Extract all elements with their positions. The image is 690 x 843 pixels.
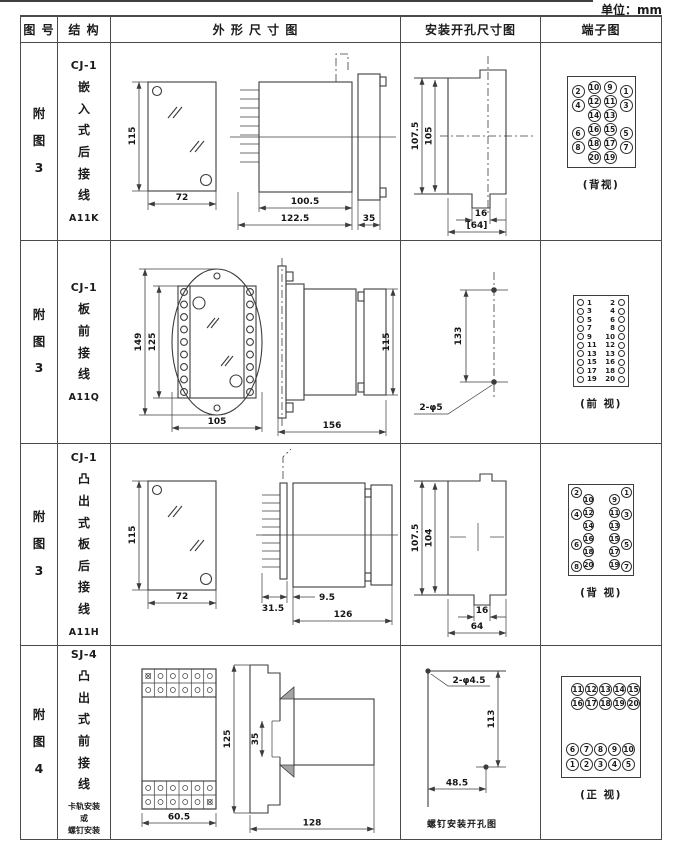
structure-desc: 板前接线: [77, 299, 92, 385]
model-label: CJ-1: [71, 59, 97, 72]
terminal-row: 78: [577, 324, 625, 332]
fig-number: 附图3: [32, 101, 47, 182]
dim-label: 100.5: [290, 197, 318, 207]
terminal-pin: 10: [622, 743, 635, 756]
mounting-cell-row4: 2-φ4.5 113 48.5 螺钉安装开孔图: [401, 646, 541, 839]
structure-cell-row2: CJ-1 板前接线 A11Q: [58, 241, 111, 444]
terminal-pin: 18: [583, 546, 594, 557]
model-code: A11K: [69, 213, 99, 224]
terminal-pin: 12: [585, 683, 598, 696]
model-label: CJ-1: [71, 451, 97, 464]
dim-label: [64]: [466, 221, 487, 231]
mounting-note: 卡轨安装 或 螺钉安装: [68, 801, 100, 837]
terminal-row: 12: [577, 299, 625, 307]
terminal-pin: 9: [609, 494, 620, 505]
terminal-pin: 6: [571, 539, 582, 550]
dim-label: 122.5: [280, 214, 308, 224]
fig-cell-row3: 附图3: [21, 444, 58, 646]
terminal-box: 12 34 56 78 910 1112 1313 1516 1718 1920: [573, 295, 629, 387]
dim-label: 48.5: [445, 778, 467, 788]
terminal-box: 11 12 13 14 15 16 17 18 19 20 6 7 8 9 10…: [561, 676, 641, 778]
terminal-caption: (背 视): [580, 585, 622, 600]
structure-cell-row3: CJ-1 凸出式板后接线 A11H: [58, 444, 111, 646]
dim-label: 115: [382, 333, 392, 352]
terminal-pin: 9: [604, 81, 617, 94]
terminal-pin: 3: [594, 758, 607, 771]
terminal-pin: 16: [583, 533, 594, 544]
terminal-pin: 20: [588, 151, 601, 164]
dim-label: 104: [424, 528, 434, 547]
terminal-pin: 17: [609, 546, 620, 557]
header-mounting: 安装开孔尺寸图: [401, 17, 541, 43]
mounting-hole-drawing-row3: 107.5 104 16 64: [402, 447, 540, 643]
fig-cell-row1: 附图3: [21, 43, 58, 241]
mounting-cell-row3: 107.5 104 16 64: [401, 444, 541, 646]
terminal-pin: 13: [609, 520, 620, 531]
dim-label: 113: [487, 709, 497, 728]
terminal-pin: 12: [588, 95, 601, 108]
terminal-row: 34: [577, 307, 625, 315]
dim-label: 115: [128, 126, 138, 145]
dim-label: 105: [207, 417, 226, 427]
model-label: SJ-4: [71, 648, 97, 661]
terminal-pin: 14: [613, 683, 626, 696]
terminal-pin: 8: [572, 141, 585, 154]
terminal-pin: 20: [583, 559, 594, 570]
dim-label: 107.5: [411, 121, 421, 149]
dim-label: 115: [128, 525, 138, 544]
terminal-cell-row3: 2 4 6 8 10 12 14 16 18 20 9 11 13 15 17 …: [541, 444, 661, 646]
structure-cell-row4: SJ-4 凸出式前接线 卡轨安装 或 螺钉安装: [58, 646, 111, 839]
outline-cell-row2: 149 125 105 115 156: [111, 241, 401, 444]
terminal-pin: 4: [608, 758, 621, 771]
dim-label: 64: [470, 622, 483, 632]
mounting-hole-drawing-row1: 107.5 105 16 [64]: [402, 44, 540, 240]
terminal-pin: 18: [588, 137, 601, 150]
terminal-cell-row4: 11 12 13 14 15 16 17 18 19 20 6 7 8 9 10…: [541, 646, 661, 839]
terminal-pin: 1: [621, 487, 632, 498]
terminal-pin: 9: [608, 743, 621, 756]
dim-label: 2-φ4.5: [452, 676, 485, 686]
terminal-pin: 1: [566, 758, 579, 771]
dim-label: 35: [362, 214, 375, 224]
dim-label: 133: [454, 327, 464, 346]
header-outline: 外 形 尺 寸 图: [111, 17, 401, 43]
outline-cell-row1: 115 72 100.5 122.5 35: [111, 43, 401, 241]
terminal-pin: 17: [585, 697, 598, 710]
terminal-pin: 3: [620, 99, 633, 112]
terminal-pin: 3: [621, 509, 632, 520]
dim-label: 149: [134, 333, 144, 352]
terminal-pin: 13: [604, 109, 617, 122]
dim-label: 72: [175, 592, 188, 602]
terminal-pin: 4: [571, 509, 582, 520]
terminal-row: 1313: [577, 350, 625, 358]
terminal-caption: (正 视): [580, 787, 622, 802]
terminal-pin: 5: [620, 127, 633, 140]
terminal-pin: 11: [571, 683, 584, 696]
dim-label: 126: [333, 610, 352, 620]
mounting-hole-drawing-row2: 133 2-φ5: [402, 244, 540, 440]
terminal-pin: 15: [609, 533, 620, 544]
terminal-pin: 15: [627, 683, 640, 696]
terminal-pin: 4: [572, 99, 585, 112]
dim-label: 125: [148, 333, 158, 352]
terminal-pin: 6: [572, 127, 585, 140]
header-terminal: 端子图: [541, 17, 661, 43]
mounting-cell-row1: 107.5 105 16 [64]: [401, 43, 541, 241]
mounting-cell-row2: 133 2-φ5: [401, 241, 541, 444]
fig-cell-row4: 附图4: [21, 646, 58, 839]
dim-label: 31.5: [261, 604, 283, 614]
dim-label: 125: [223, 729, 233, 748]
structure-desc: 凸出式板后接线: [77, 469, 92, 620]
terminal-pin: 16: [588, 123, 601, 136]
dim-label: 16: [475, 606, 488, 616]
dim-label: 35: [251, 732, 261, 745]
page-root: 单位：mm 图 号 结 构 外 形 尺 寸 图 安装开孔尺寸图 端子图 附图3 …: [0, 0, 690, 843]
terminal-pin: 8: [594, 743, 607, 756]
terminal-cell-row1: 2 4 6 8 10 12 14 16 18 20 9 11 13 15 17 …: [541, 43, 661, 241]
dim-label: 156: [322, 421, 341, 431]
terminal-pin: 14: [583, 520, 594, 531]
terminal-row: 910: [577, 333, 625, 341]
model-label: CJ-1: [71, 281, 97, 294]
terminal-pin: 11: [609, 507, 620, 518]
terminal-pin: 18: [599, 697, 612, 710]
terminal-pin: 19: [604, 151, 617, 164]
dim-label: 16: [474, 209, 487, 219]
terminal-caption: (背视): [583, 177, 620, 192]
terminal-row: 1112: [577, 341, 625, 349]
structure-desc: 凸出式前接线: [77, 666, 92, 796]
outline-cell-row3: 115 72 31.5 9.5 126: [111, 444, 401, 646]
structure-desc: 嵌入式后接线: [77, 77, 92, 207]
model-code: A11H: [69, 627, 100, 638]
terminal-pin: 2: [580, 758, 593, 771]
terminal-caption: (前 视): [580, 396, 622, 411]
dim-label: 9.5: [319, 593, 335, 603]
mounting-caption: 螺钉安装开孔图: [426, 818, 496, 830]
terminal-row: 1718: [577, 367, 625, 375]
terminal-pin: 10: [588, 81, 601, 94]
dim-label: 72: [175, 193, 188, 203]
dim-label: 128: [302, 818, 321, 828]
terminal-pin: 1: [620, 85, 633, 98]
top-rule: [0, 0, 593, 2]
outline-drawing-cj1-front-wired: 149 125 105 115 156: [112, 242, 400, 442]
outline-cell-row4: 60.5 35 125 128: [111, 646, 401, 839]
terminal-pin: 8: [571, 561, 582, 572]
header-structure: 结 构: [58, 17, 111, 43]
terminal-box: 2 4 6 8 10 12 14 16 18 20 9 11 13 15 17 …: [567, 76, 636, 168]
mounting-hole-drawing-row4: 2-φ4.5 113 48.5 螺钉安装开孔图: [402, 647, 540, 839]
terminal-pin: 19: [613, 697, 626, 710]
model-code: A11Q: [69, 392, 100, 403]
terminal-box: 2 4 6 8 10 12 14 16 18 20 9 11 13 15 17 …: [568, 484, 634, 576]
terminal-pin: 20: [627, 697, 640, 710]
terminal-pin: 12: [583, 507, 594, 518]
terminal-pin: 16: [571, 697, 584, 710]
terminal-pin: 7: [620, 141, 633, 154]
header-fig: 图 号: [21, 17, 58, 43]
terminal-pin: 10: [583, 494, 594, 505]
dim-label: 107.5: [411, 523, 421, 551]
outline-drawing-sj4: 60.5 35 125 128: [112, 647, 400, 839]
terminal-row: 1516: [577, 358, 625, 366]
structure-cell-row1: CJ-1 嵌入式后接线 A11K: [58, 43, 111, 241]
terminal-pin: 5: [621, 539, 632, 550]
terminal-pin: 7: [621, 561, 632, 572]
dimension-table: 图 号 结 构 外 形 尺 寸 图 安装开孔尺寸图 端子图 附图3 CJ-1 嵌…: [20, 15, 662, 840]
terminal-pin: 19: [609, 559, 620, 570]
terminal-pin: 11: [604, 95, 617, 108]
terminal-pin: 2: [572, 85, 585, 98]
terminal-pin: 6: [566, 743, 579, 756]
terminal-pin: 7: [580, 743, 593, 756]
terminal-cell-row2: 12 34 56 78 910 1112 1313 1516 1718 1920…: [541, 241, 661, 444]
terminal-pin: 13: [599, 683, 612, 696]
terminal-pin: 17: [604, 137, 617, 150]
dim-label: 105: [424, 126, 434, 145]
fig-number: 附图3: [32, 302, 47, 383]
dim-label: 2-φ5: [419, 403, 442, 413]
outline-drawing-cj1-flush-rear: 115 72 100.5 122.5 35: [112, 44, 400, 240]
outline-drawing-cj1-protruding-rear: 115 72 31.5 9.5 126: [112, 445, 400, 645]
terminal-row: 1920: [577, 375, 625, 383]
fig-number: 附图3: [32, 504, 47, 585]
terminal-pin: 5: [622, 758, 635, 771]
fig-cell-row2: 附图3: [21, 241, 58, 444]
dim-label: 60.5: [167, 812, 189, 822]
terminal-row: 56: [577, 316, 625, 324]
fig-number: 附图4: [32, 702, 47, 783]
terminal-pin: 15: [604, 123, 617, 136]
terminal-pin: 14: [588, 109, 601, 122]
terminal-pin: 2: [571, 487, 582, 498]
